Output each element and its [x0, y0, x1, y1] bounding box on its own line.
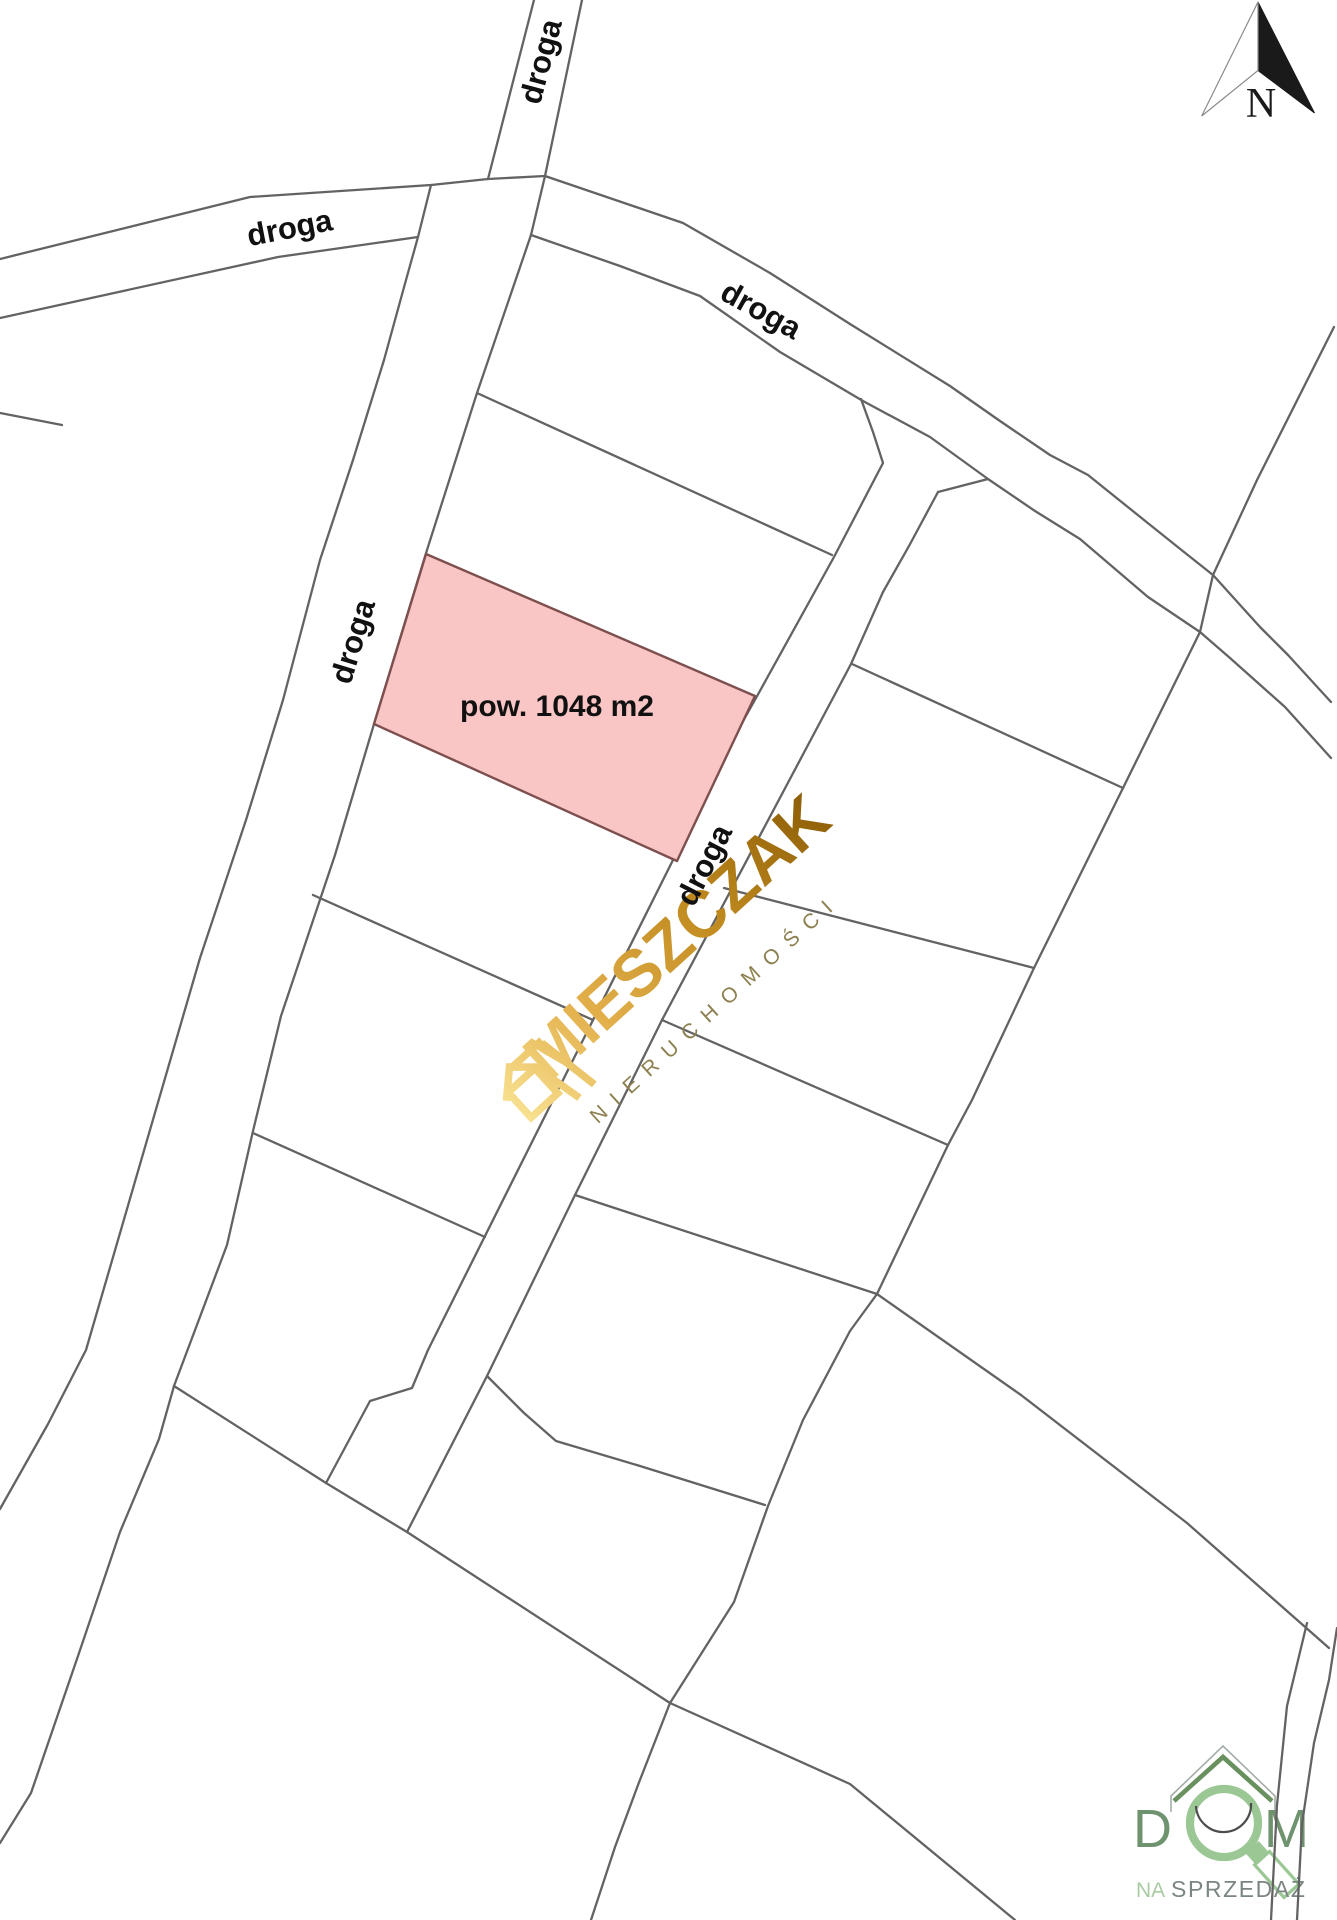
svg-text:NA: NA [1136, 1879, 1165, 1902]
svg-text:N: N [1246, 81, 1276, 127]
svg-text:D: D [1133, 1799, 1172, 1859]
svg-text:SPRZEDAŻ: SPRZEDAŻ [1171, 1876, 1306, 1902]
svg-text:pow. 1048 m2: pow. 1048 m2 [460, 690, 654, 723]
